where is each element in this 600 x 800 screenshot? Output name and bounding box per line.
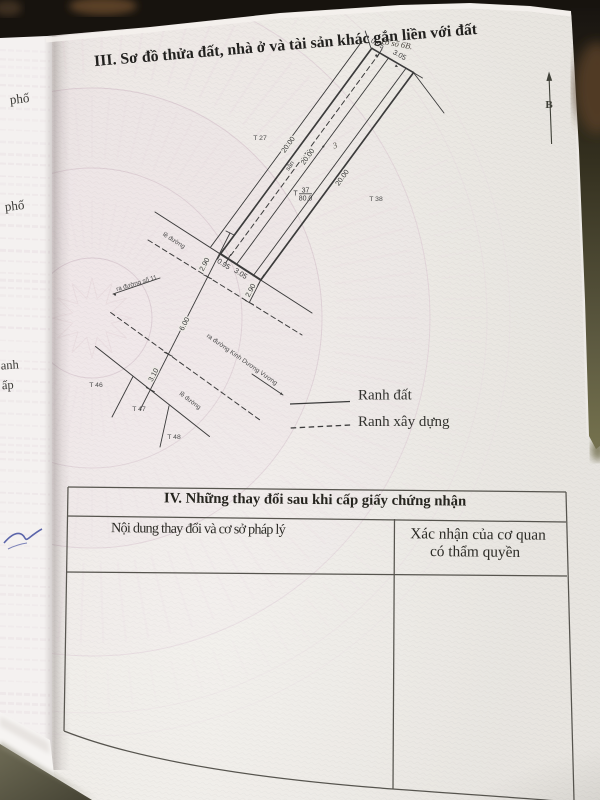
svg-text:T 27: T 27 bbox=[253, 135, 267, 142]
svg-text:T 47: T 47 bbox=[132, 406, 146, 413]
svg-text:Xác nhận của cơ quan: Xác nhận của cơ quan bbox=[410, 525, 546, 543]
svg-text:T 38: T 38 bbox=[369, 196, 383, 203]
svg-text:T 46: T 46 bbox=[89, 382, 103, 389]
svg-text:80.0: 80.0 bbox=[299, 196, 313, 203]
svg-text:ấp: ấp bbox=[1, 378, 14, 393]
svg-text:Ranh đất: Ranh đất bbox=[358, 388, 413, 404]
svg-text:Nội dung thay đổi và cơ sở phá: Nội dung thay đổi và cơ sở pháp lý bbox=[111, 520, 287, 538]
svg-text:B: B bbox=[545, 99, 553, 111]
svg-text:anh: anh bbox=[0, 357, 20, 372]
svg-text:Ranh xây dựng: Ranh xây dựng bbox=[358, 414, 450, 430]
svg-text:phố: phố bbox=[9, 90, 30, 107]
svg-text:có thẩm quyền: có thẩm quyền bbox=[430, 543, 521, 561]
svg-text:phố: phố bbox=[4, 197, 25, 214]
svg-text:T: T bbox=[293, 191, 298, 198]
svg-text:IV. Những thay đổi sau khi cấp: IV. Những thay đổi sau khi cấp giấy chứn… bbox=[164, 490, 466, 509]
svg-text:T 48: T 48 bbox=[167, 434, 181, 441]
